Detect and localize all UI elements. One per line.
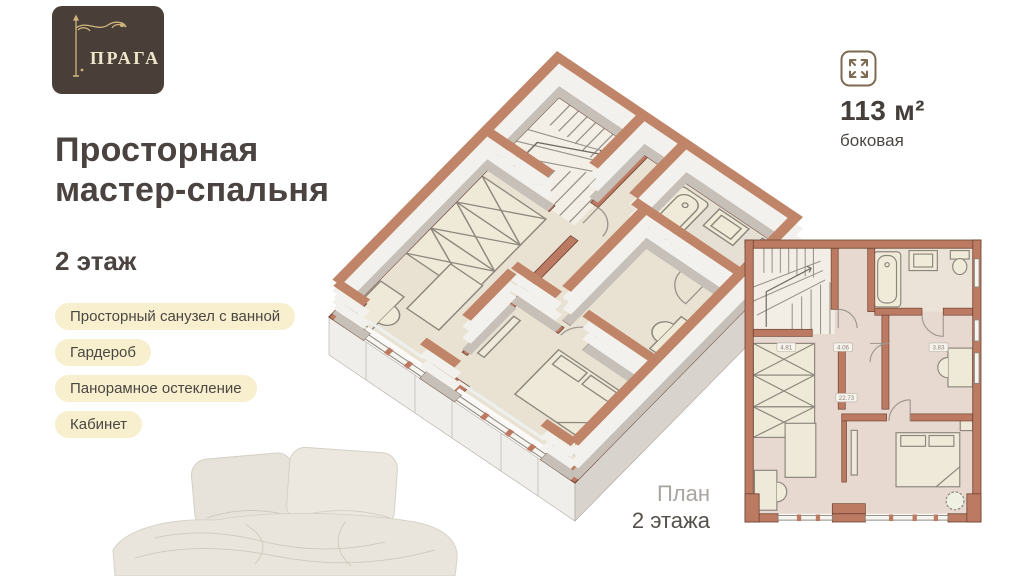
svg-text:4.81: 4.81 <box>780 345 793 352</box>
area-badge: 113 м² боковая <box>840 50 990 151</box>
area-type: боковая <box>840 131 990 151</box>
page-title: Просторная мастер-спальня <box>55 130 415 210</box>
brand-logo: ПРАГА <box>52 6 164 94</box>
feature-pill-wardrobe: Гардероб <box>55 339 151 366</box>
floor-label: 2 этаж <box>55 246 136 277</box>
feature-list: Просторный санузел с ванной Гардероб Пан… <box>55 303 295 438</box>
feature-pill-glazing: Панорамное остекление <box>55 375 257 402</box>
feature-pill-bathroom: Просторный санузел с ванной <box>55 303 295 330</box>
svg-text:3.83: 3.83 <box>933 345 946 352</box>
area-value: 113 м² <box>840 95 990 127</box>
svg-text:22.73: 22.73 <box>839 395 855 402</box>
bed-photo <box>95 438 465 576</box>
feature-pill-office: Кабинет <box>55 411 142 438</box>
plan-caption: План 2 этажа <box>540 480 710 534</box>
brand-name: ПРАГА <box>90 48 161 68</box>
svg-text:4.06: 4.06 <box>837 345 850 352</box>
expand-arrows-icon[interactable] <box>840 50 877 87</box>
floor-plan-2d: 4.81 4.06 3.83 22.73 <box>745 240 981 522</box>
